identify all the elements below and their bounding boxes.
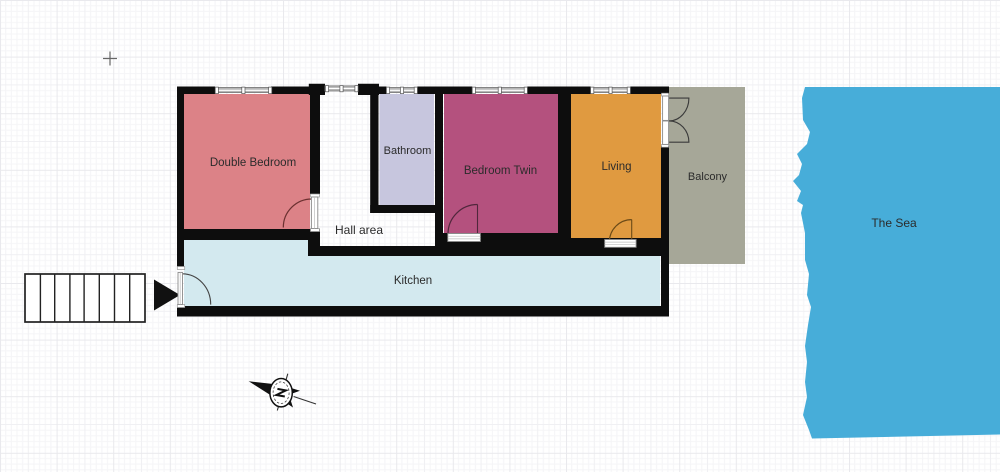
- svg-text:Hall area: Hall area: [335, 223, 383, 237]
- svg-text:Bathroom: Bathroom: [384, 145, 432, 157]
- svg-text:Bedroom Twin: Bedroom Twin: [464, 165, 537, 177]
- svg-text:Kitchen: Kitchen: [394, 275, 432, 287]
- svg-text:Double Bedroom: Double Bedroom: [210, 157, 296, 169]
- svg-text:Living: Living: [601, 161, 631, 173]
- svg-text:Balcony: Balcony: [688, 171, 728, 183]
- svg-text:The Sea: The Sea: [871, 216, 917, 230]
